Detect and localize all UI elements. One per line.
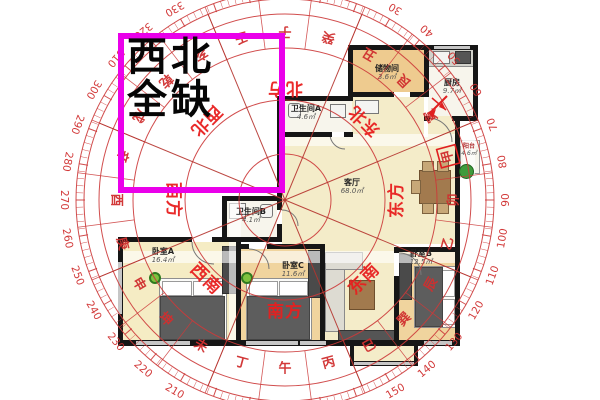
room-name: 卧室A bbox=[138, 247, 188, 256]
compass-tick bbox=[334, 396, 336, 400]
nightstand-icon bbox=[149, 272, 161, 284]
wall bbox=[277, 132, 332, 137]
compass-tick bbox=[108, 89, 114, 93]
compass-tick bbox=[485, 171, 492, 172]
chair-icon bbox=[437, 203, 449, 214]
compass-tick bbox=[380, 378, 383, 384]
degree-label: 100 bbox=[495, 227, 510, 249]
pillow-icon bbox=[441, 270, 455, 297]
compass-tick bbox=[481, 249, 488, 251]
compass-tick bbox=[341, 394, 343, 400]
compass-tick bbox=[140, 345, 145, 350]
compass-tick bbox=[214, 388, 217, 396]
compass-tick bbox=[97, 108, 103, 111]
wall bbox=[352, 92, 394, 97]
compass-tick bbox=[234, 0, 236, 4]
basin-icon bbox=[330, 104, 346, 118]
compass-tick bbox=[89, 268, 97, 271]
compass-tick bbox=[374, 12, 377, 18]
chair-icon bbox=[422, 203, 434, 214]
cabinet-icon bbox=[355, 100, 379, 114]
pillow-icon bbox=[162, 281, 192, 296]
compass-tick bbox=[234, 396, 236, 400]
compass-tick bbox=[94, 282, 100, 285]
compass-tick bbox=[404, 31, 408, 37]
coffee-table-icon bbox=[349, 280, 375, 310]
compass-tick bbox=[227, 394, 229, 400]
compass-sector-line bbox=[258, 351, 265, 400]
degree-label: 30 bbox=[387, 0, 405, 17]
compass-tick bbox=[220, 392, 222, 399]
compass-tick bbox=[86, 262, 93, 264]
window bbox=[424, 341, 452, 345]
nightstand-icon bbox=[241, 272, 253, 284]
compass-tick bbox=[174, 371, 178, 377]
degree-label: 80 bbox=[496, 154, 510, 169]
wall bbox=[236, 242, 241, 344]
compass-tick bbox=[207, 387, 210, 393]
compass-tick bbox=[385, 373, 390, 381]
room-label-bath-a: 卫生间A 4.6㎡ bbox=[281, 104, 331, 121]
compass-tick bbox=[327, 0, 328, 2]
compass-tick bbox=[200, 9, 203, 15]
room-label-balcony: 阳台 4.6㎡ bbox=[455, 144, 483, 158]
compass-tick bbox=[482, 164, 491, 166]
chair-icon bbox=[422, 161, 434, 172]
room-name: 卫生间A bbox=[281, 104, 331, 113]
compass-tick bbox=[341, 0, 343, 6]
room-label-bedroom-a: 卧室A 16.4㎡ bbox=[138, 247, 188, 264]
corridor-floor bbox=[282, 202, 322, 244]
room-label-kitchen: 厨房 9.7㎡ bbox=[427, 78, 477, 95]
compass-tick bbox=[97, 289, 103, 292]
room-name: 厨房 bbox=[427, 78, 477, 87]
degree-label: 70 bbox=[485, 116, 501, 133]
compass-sector-line bbox=[305, 0, 312, 49]
room-label-bath-b: 卫生间B 4.1㎡ bbox=[226, 207, 276, 224]
degree-label: 250 bbox=[68, 264, 86, 287]
wall bbox=[424, 116, 430, 121]
compass-tick bbox=[78, 228, 85, 229]
degree-label: 260 bbox=[60, 227, 75, 249]
compass-tick bbox=[145, 350, 150, 355]
compass-tick bbox=[162, 363, 166, 369]
compass-tick bbox=[104, 96, 112, 101]
degree-label: 240 bbox=[83, 299, 103, 322]
compass-tick bbox=[398, 27, 402, 33]
degree-label: 110 bbox=[484, 264, 502, 287]
degree-label: 300 bbox=[83, 78, 103, 101]
compass-tick bbox=[193, 382, 196, 388]
compass-tick bbox=[409, 35, 413, 41]
room-label-bedroom-c: 卧室C 11.6㎡ bbox=[268, 261, 318, 278]
compass-sector-line bbox=[305, 351, 312, 400]
compass-tick bbox=[374, 382, 377, 388]
compass-tick bbox=[193, 12, 196, 18]
degree-label: 90 bbox=[500, 193, 512, 206]
compass-tick bbox=[187, 15, 190, 21]
compass-tick bbox=[207, 6, 210, 12]
compass-tick bbox=[112, 83, 118, 87]
room-name: 卧室B bbox=[396, 249, 446, 258]
room-area: 11.6㎡ bbox=[268, 270, 318, 278]
pillow-icon bbox=[249, 281, 278, 296]
wall bbox=[212, 237, 282, 242]
room-label-bedroom-b: 卧室B 12.5㎡ bbox=[396, 249, 446, 266]
compass-tick bbox=[227, 0, 229, 6]
compass-tick bbox=[81, 242, 88, 243]
annotation-line-2: 全缺 bbox=[127, 77, 215, 123]
room-label-living: 客厅 68.0㎡ bbox=[327, 178, 377, 195]
compass-tick bbox=[174, 23, 178, 29]
degree-label: 140 bbox=[416, 358, 439, 380]
room-label-storage: 储物间 3.6㎡ bbox=[362, 64, 412, 81]
compass-tick bbox=[79, 164, 88, 166]
compass-tick bbox=[242, 0, 243, 2]
missing-corner-annotation: 西北 全缺 bbox=[127, 36, 215, 122]
compass-tick bbox=[353, 388, 356, 396]
annotation-line-1: 西北 bbox=[127, 34, 215, 80]
compass-tick bbox=[77, 221, 84, 222]
compass-tick bbox=[200, 385, 203, 391]
room-area: 12.5㎡ bbox=[396, 258, 446, 266]
window bbox=[118, 262, 122, 314]
compass-tick bbox=[380, 15, 383, 21]
wall bbox=[394, 276, 399, 344]
compass-tick bbox=[100, 102, 106, 105]
wall bbox=[277, 196, 282, 210]
degree-label: 150 bbox=[384, 381, 407, 400]
compass-tick bbox=[156, 359, 160, 365]
compass-tick bbox=[181, 373, 186, 381]
window bbox=[434, 46, 470, 49]
compass-tick bbox=[108, 307, 114, 311]
compass-tick bbox=[486, 221, 493, 222]
degree-label: 270 bbox=[58, 190, 70, 210]
compass-tick bbox=[84, 142, 91, 144]
compass-tick bbox=[477, 135, 484, 137]
compass-tick bbox=[112, 313, 118, 317]
wall bbox=[222, 196, 282, 201]
compass-tick bbox=[361, 387, 364, 393]
compass-tick bbox=[353, 4, 356, 12]
room-name: 卫生间B bbox=[226, 207, 276, 216]
blanket-icon bbox=[247, 296, 310, 340]
room-area: 16.4㎡ bbox=[138, 256, 188, 264]
dining-table-icon bbox=[419, 170, 451, 204]
compass-tick bbox=[367, 9, 370, 15]
compass-tick bbox=[168, 27, 172, 33]
compass-tick bbox=[420, 350, 425, 355]
compass-tick bbox=[486, 178, 493, 179]
compass-tick bbox=[168, 367, 172, 373]
compass-tick bbox=[479, 256, 486, 258]
window bbox=[246, 341, 298, 345]
mountain-char: 午 bbox=[278, 361, 291, 377]
compass-tick bbox=[249, 0, 251, 3]
degree-label: 290 bbox=[68, 113, 86, 136]
compass-sector-line bbox=[205, 340, 227, 393]
room-area: 4.1㎡ bbox=[226, 216, 276, 224]
compass-tick bbox=[82, 149, 89, 151]
compass-tick bbox=[320, 0, 322, 3]
compass-tick bbox=[334, 0, 336, 4]
compass-tick bbox=[367, 385, 370, 391]
compass-tick bbox=[425, 345, 430, 350]
sink-icon bbox=[433, 51, 450, 64]
room-name: 卧室C bbox=[268, 261, 318, 270]
compass-tick bbox=[91, 276, 97, 279]
compass-tick bbox=[78, 171, 85, 172]
degree-label: 330 bbox=[163, 0, 186, 19]
compass-tick bbox=[100, 295, 106, 298]
wall bbox=[277, 96, 353, 101]
compass-tick bbox=[347, 1, 349, 8]
compass-tick bbox=[91, 122, 97, 125]
compass-tick bbox=[398, 367, 402, 373]
window bbox=[354, 362, 414, 365]
stove-icon bbox=[455, 51, 471, 64]
pillow-icon bbox=[193, 281, 223, 296]
plant-icon bbox=[459, 164, 474, 179]
compass-tick bbox=[477, 262, 484, 264]
compass-tick bbox=[482, 235, 491, 237]
degree-label: 220 bbox=[131, 358, 154, 380]
window bbox=[300, 341, 326, 345]
wall bbox=[118, 237, 192, 242]
compass-tick bbox=[89, 129, 97, 132]
floorplan-compass-image: 储物间 3.6㎡ 厨房 9.7㎡ 卫生间A 4.6㎡ 卫生间B 4.1㎡ 客厅 … bbox=[0, 0, 600, 400]
mountain-char: 丁 bbox=[233, 354, 249, 372]
compass-sector-line bbox=[78, 220, 135, 227]
mountain-char: 丙 bbox=[321, 354, 337, 372]
compass-tick bbox=[214, 4, 217, 12]
room-name: 客厅 bbox=[327, 178, 377, 187]
pillow-icon bbox=[279, 281, 308, 296]
compass-tick bbox=[94, 115, 100, 118]
mountain-char: 酉 bbox=[109, 193, 124, 206]
compass-tick bbox=[81, 157, 88, 158]
wall bbox=[267, 244, 325, 249]
compass-tick bbox=[82, 249, 89, 251]
compass-tick bbox=[483, 157, 490, 158]
degree-label: 340 bbox=[198, 0, 221, 1]
compass-tick bbox=[77, 178, 84, 179]
degree-label: 210 bbox=[163, 381, 186, 400]
wall bbox=[241, 244, 249, 249]
blanket-icon bbox=[160, 296, 225, 340]
compass-tick bbox=[104, 300, 112, 305]
degree-label: 40 bbox=[418, 22, 436, 40]
compass-tick bbox=[483, 242, 490, 243]
room-area: 4.6㎡ bbox=[281, 113, 331, 121]
wall bbox=[320, 244, 325, 344]
compass-tick bbox=[79, 235, 88, 237]
compass-tick bbox=[485, 228, 492, 229]
room-area: 68.0㎡ bbox=[327, 187, 377, 195]
wall bbox=[344, 132, 353, 137]
compass-tick bbox=[151, 353, 157, 360]
room-name: 储物间 bbox=[362, 64, 412, 73]
chair-icon bbox=[437, 161, 449, 172]
compass-tick bbox=[86, 135, 93, 137]
compass-tick bbox=[385, 19, 390, 27]
room-area: 4.6㎡ bbox=[455, 151, 483, 158]
room-area: 9.7㎡ bbox=[427, 87, 477, 95]
compass-tick bbox=[392, 371, 396, 377]
compass-tick bbox=[181, 19, 186, 27]
compass-tick bbox=[187, 378, 190, 384]
room-area: 3.6㎡ bbox=[362, 73, 412, 81]
pillow-icon bbox=[441, 299, 455, 325]
compass-tick bbox=[361, 6, 364, 12]
degree-label: 280 bbox=[60, 151, 75, 173]
compass-tick bbox=[347, 392, 349, 399]
mountain-char: 癸 bbox=[319, 28, 338, 47]
compass-tick bbox=[220, 1, 222, 8]
compass-tick bbox=[84, 256, 91, 258]
compass-tick bbox=[392, 23, 396, 29]
chair-icon bbox=[411, 180, 421, 194]
blanket-icon bbox=[415, 267, 443, 327]
window bbox=[136, 341, 190, 345]
